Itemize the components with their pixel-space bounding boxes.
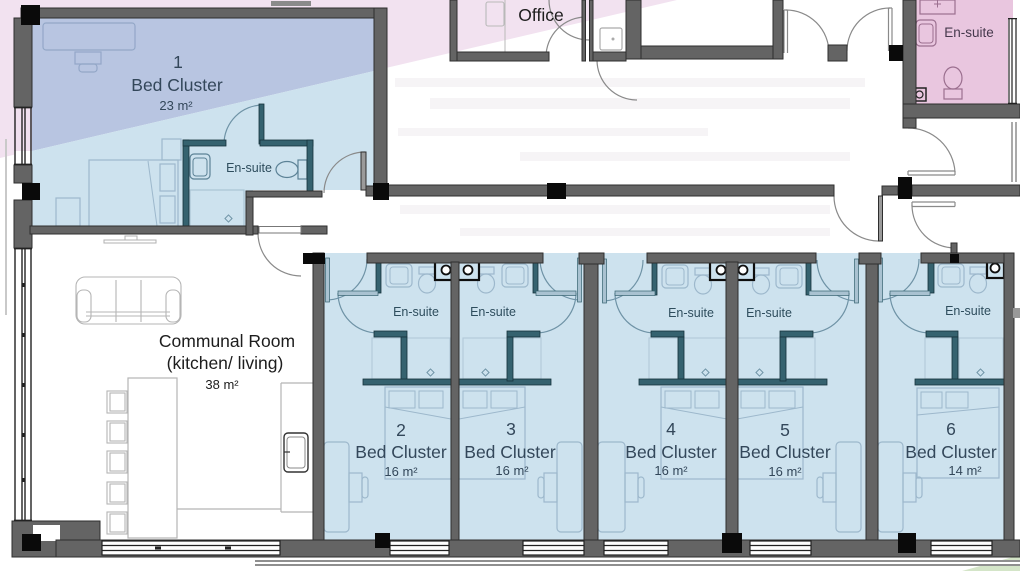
svg-text:23 m²: 23 m² [159, 98, 193, 113]
svg-text:16 m²: 16 m² [384, 464, 418, 479]
svg-text:Bed Cluster: Bed Cluster [355, 442, 447, 462]
svg-text:14 m²: 14 m² [948, 463, 982, 478]
svg-text:En-suite: En-suite [470, 305, 516, 319]
svg-text:Bed Cluster: Bed Cluster [464, 442, 556, 462]
svg-text:Communal Room: Communal Room [159, 331, 295, 351]
svg-text:1: 1 [173, 52, 183, 72]
svg-text:Bed Cluster: Bed Cluster [625, 442, 717, 462]
svg-text:6: 6 [946, 419, 956, 439]
svg-text:16 m²: 16 m² [495, 463, 529, 478]
svg-text:2: 2 [396, 420, 406, 440]
svg-text:Bed Cluster: Bed Cluster [739, 442, 831, 462]
svg-text:5: 5 [780, 420, 790, 440]
svg-text:En-suite: En-suite [393, 305, 439, 319]
svg-text:16 m²: 16 m² [654, 463, 688, 478]
svg-text:En-suite: En-suite [944, 25, 994, 40]
svg-text:Bed Cluster: Bed Cluster [131, 75, 223, 95]
svg-text:En-suite: En-suite [668, 306, 714, 320]
svg-text:(kitchen/ living): (kitchen/ living) [167, 353, 284, 373]
svg-text:En-suite: En-suite [945, 304, 991, 318]
svg-text:16 m²: 16 m² [768, 464, 802, 479]
svg-text:38 m²: 38 m² [205, 377, 239, 392]
svg-text:4: 4 [666, 419, 676, 439]
svg-text:3: 3 [506, 419, 516, 439]
svg-text:En-suite: En-suite [746, 306, 792, 320]
svg-text:Office: Office [518, 5, 563, 25]
svg-text:Bed Cluster: Bed Cluster [905, 442, 997, 462]
svg-text:En-suite: En-suite [226, 161, 272, 175]
